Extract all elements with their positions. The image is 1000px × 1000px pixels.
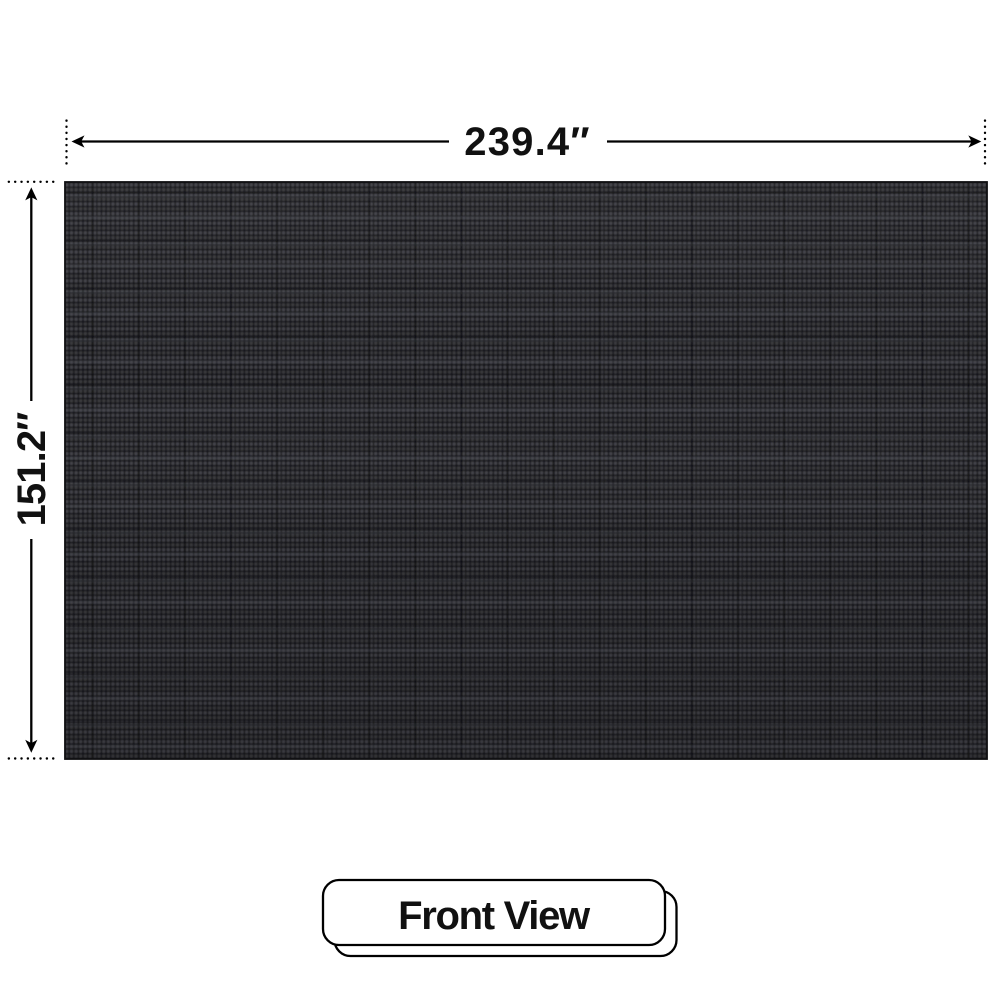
svg-text:151.2″: 151.2″	[10, 412, 54, 527]
svg-text:239.4″: 239.4″	[464, 120, 590, 164]
svg-text:Front View: Front View	[398, 894, 591, 938]
